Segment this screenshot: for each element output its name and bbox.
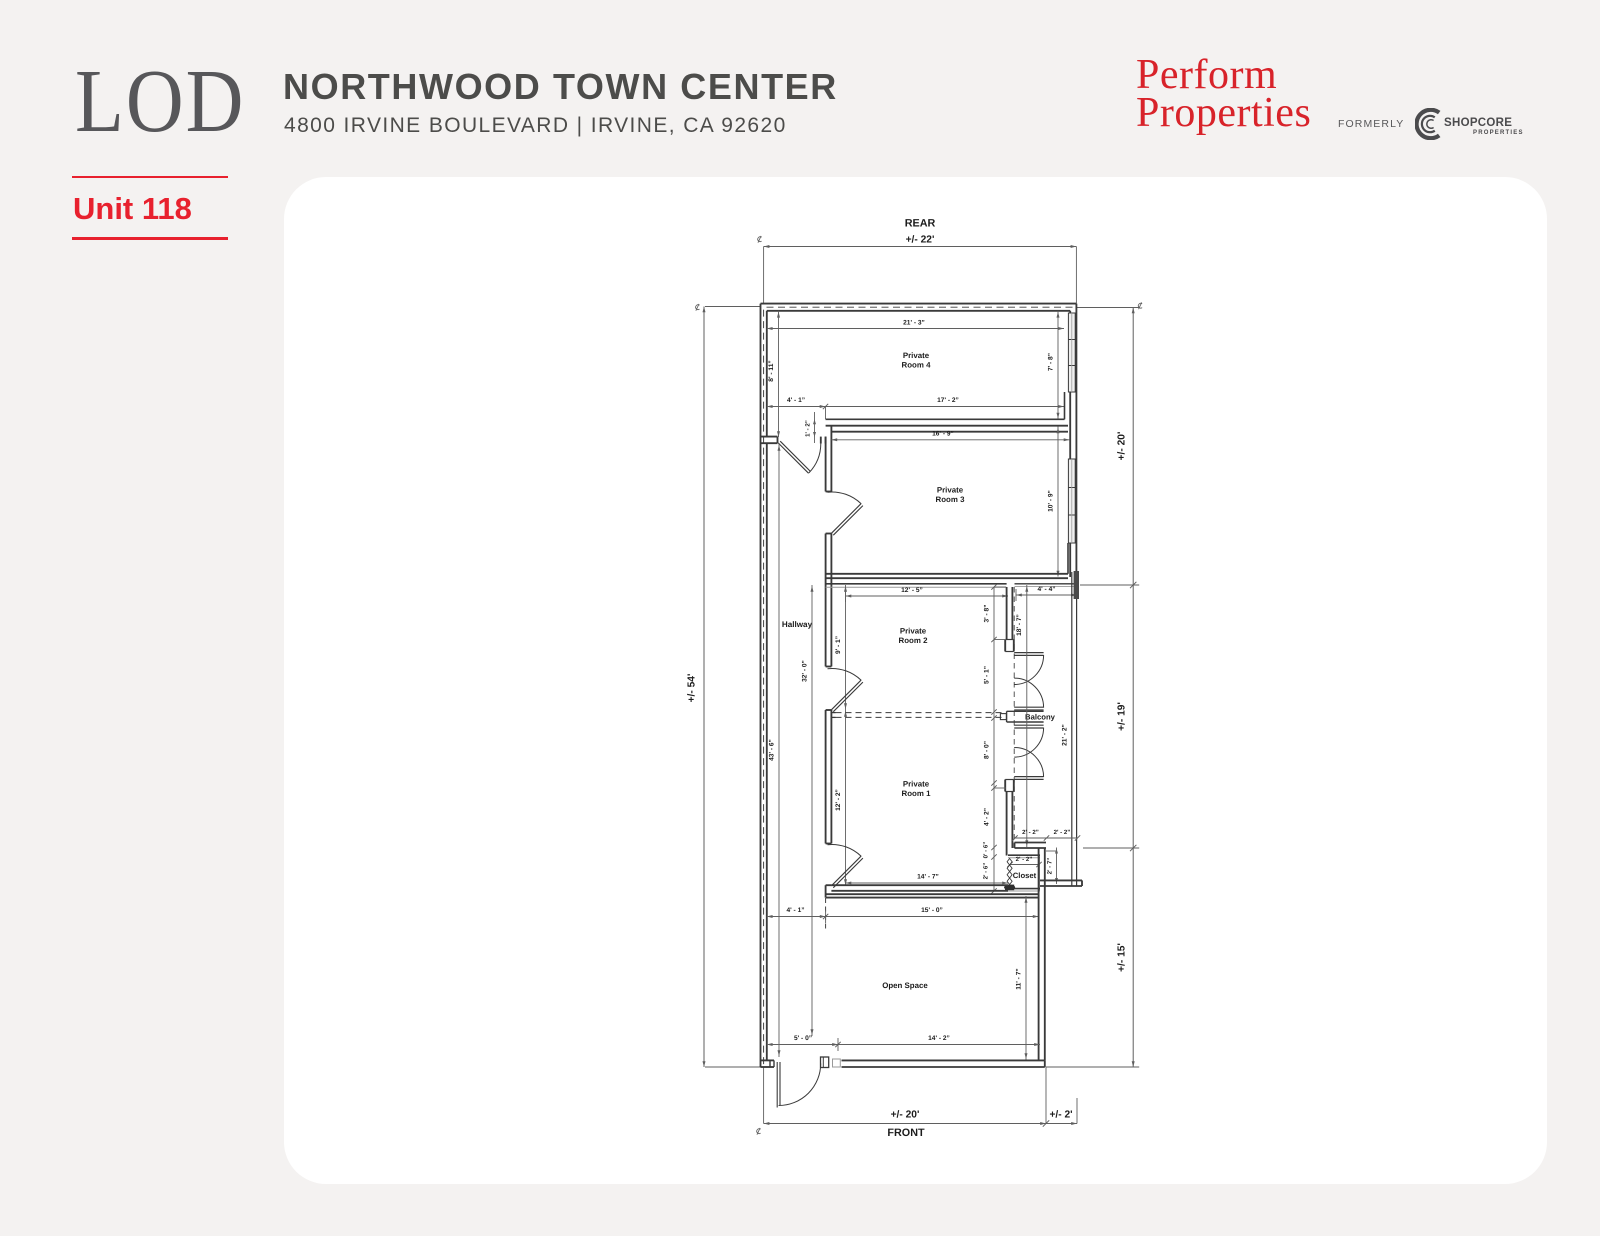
- svg-text:Room 1: Room 1: [902, 789, 932, 798]
- svg-text:+/- 20': +/- 20': [1117, 432, 1128, 461]
- svg-text:3' - 8”: 3' - 8”: [983, 604, 990, 622]
- svg-text:Private: Private: [900, 627, 927, 636]
- svg-text:Room 3: Room 3: [936, 495, 966, 504]
- svg-text:Private: Private: [903, 780, 930, 789]
- svg-text:Room 4: Room 4: [902, 361, 932, 370]
- svg-text:Room 2: Room 2: [899, 636, 929, 645]
- svg-text:+/- 20': +/- 20': [891, 1110, 920, 1121]
- svg-text:2' - 2”: 2' - 2”: [1022, 829, 1039, 836]
- svg-text:17' - 2”: 17' - 2”: [937, 397, 959, 404]
- svg-text:14' - 2”: 14' - 2”: [928, 1035, 950, 1042]
- svg-text:2' - 2”: 2' - 2”: [1054, 829, 1071, 836]
- svg-text:14' - 7”: 14' - 7”: [917, 874, 939, 881]
- svg-text:4' - 1”: 4' - 1”: [786, 907, 804, 914]
- svg-text:12' - 5”: 12' - 5”: [901, 587, 923, 594]
- svg-text:4' - 2”: 4' - 2”: [983, 808, 990, 826]
- svg-text:0' - 6”: 0' - 6”: [983, 842, 990, 859]
- svg-text:1' - 2”: 1' - 2”: [805, 420, 812, 437]
- svg-text:21' - 2”: 21' - 2”: [1061, 724, 1068, 746]
- svg-text:Private: Private: [937, 486, 964, 495]
- svg-text:+/- 15': +/- 15': [1117, 943, 1128, 972]
- svg-text:11' - 7”: 11' - 7”: [1015, 968, 1022, 989]
- svg-text:2' - 6”: 2' - 6”: [983, 863, 990, 880]
- svg-text:FRONT: FRONT: [887, 1127, 925, 1139]
- svg-text:+/- 54': +/- 54': [687, 674, 698, 703]
- svg-text:7' - 8”: 7' - 8”: [1047, 353, 1054, 371]
- svg-text:+/- 2': +/- 2': [1049, 1110, 1072, 1121]
- svg-text:4' - 4”: 4' - 4”: [1037, 586, 1055, 593]
- svg-text:+/- 22': +/- 22': [906, 235, 935, 246]
- svg-text:15' - 0”: 15' - 0”: [921, 907, 943, 914]
- svg-text:Hallway: Hallway: [782, 620, 813, 629]
- svg-text:2' - 7”: 2' - 7”: [1047, 858, 1054, 875]
- svg-text:+/- 19': +/- 19': [1117, 702, 1128, 731]
- svg-text:32' - 0”: 32' - 0”: [801, 660, 808, 682]
- svg-text:Balcony: Balcony: [1025, 713, 1056, 722]
- svg-text:2' - 2”: 2' - 2”: [1016, 856, 1033, 863]
- svg-text:21' - 3”: 21' - 3”: [903, 320, 925, 327]
- svg-text:Private: Private: [903, 351, 930, 360]
- svg-text:9' - 1”: 9' - 1”: [835, 636, 842, 654]
- svg-text:10' - 9”: 10' - 9”: [1047, 490, 1054, 512]
- svg-text:4' - 1”: 4' - 1”: [787, 397, 805, 404]
- svg-text:REAR: REAR: [905, 218, 936, 230]
- svg-text:16' - 9”: 16' - 9”: [932, 431, 954, 438]
- svg-text:Open Space: Open Space: [882, 981, 928, 990]
- svg-text:12' - 2”: 12' - 2”: [835, 789, 842, 811]
- svg-text:Closet: Closet: [1013, 871, 1037, 880]
- svg-text:8' - 11”: 8' - 11”: [768, 360, 775, 381]
- svg-text:43' - 6”: 43' - 6”: [768, 739, 775, 761]
- svg-text:18' - 7”: 18' - 7”: [1016, 614, 1023, 636]
- svg-text:5' - 0”: 5' - 0”: [794, 1035, 812, 1042]
- svg-text:8' - 0”: 8' - 0”: [983, 741, 990, 759]
- svg-text:5' - 1”: 5' - 1”: [983, 666, 990, 684]
